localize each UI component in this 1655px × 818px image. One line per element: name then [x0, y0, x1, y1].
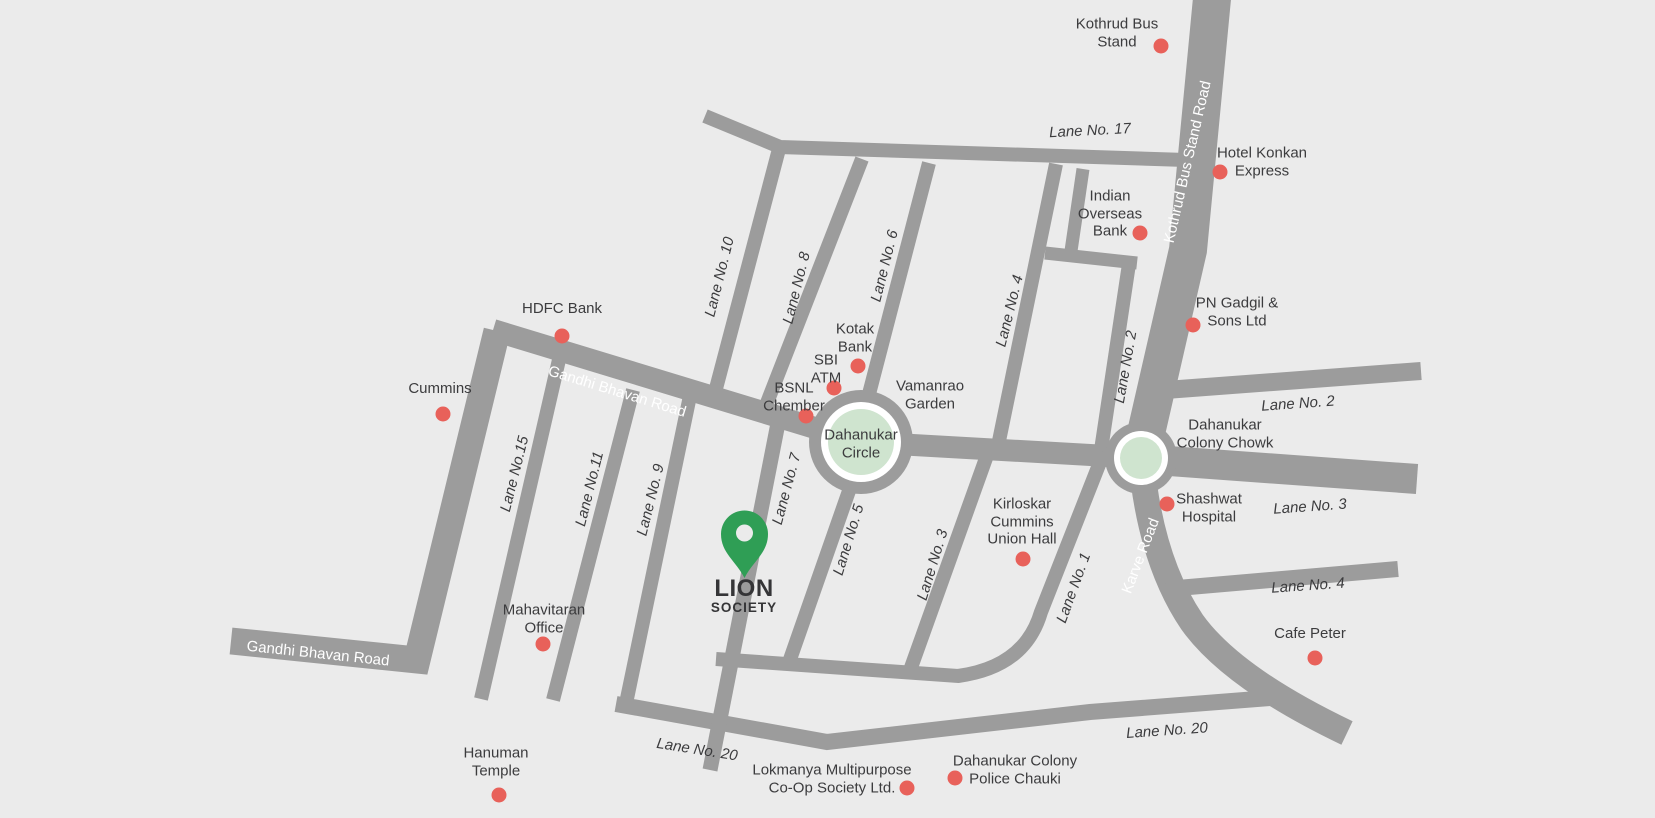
road-lane-9	[624, 391, 691, 713]
label-shashwat-hospital: Shashwat Hospital	[1176, 490, 1242, 525]
label-cummins: Cummins	[408, 380, 471, 398]
marker-kirloskar-cummins-union-hall	[1016, 552, 1031, 567]
road-lane-3-center	[908, 447, 990, 676]
lion-society-type: SOCIETY	[711, 600, 777, 616]
map-canvas	[0, 0, 1655, 818]
road-lane-11	[553, 390, 633, 700]
marker-hdfc-bank	[555, 329, 570, 344]
dahanukar-chowk-green	[1120, 437, 1162, 479]
label-cafe-peter: Cafe Peter	[1274, 625, 1346, 643]
road-lane-1	[716, 452, 1104, 676]
marker-mahavitaran-office	[536, 637, 551, 652]
label-hanuman-temple: Hanuman Temple	[463, 744, 528, 779]
marker-kotak-bank	[851, 359, 866, 374]
label-lokmanya-society: Lokmanya Multipurpose Co-Op Society Ltd.	[752, 761, 911, 796]
label-kothrud-bus-stand: Kothrud Bus Stand	[1076, 15, 1159, 50]
label-vamanrao-garden: Vamanrao Garden	[896, 377, 964, 412]
road-iob-block-south	[1045, 253, 1137, 263]
lion-society-pin-icon	[721, 511, 768, 579]
label-dahanukar-circle: Dahanukar Circle	[824, 426, 897, 461]
marker-cafe-peter	[1308, 651, 1323, 666]
label-pn-gadgil-sons: PN Gadgil & Sons Ltd	[1196, 294, 1279, 329]
marker-shashwat-hospital	[1160, 497, 1175, 512]
label-dahanukar-police-chauki: Dahanukar Colony Police Chauki	[953, 752, 1077, 787]
label-kotak-bank: Kotak Bank	[836, 320, 874, 355]
lion-society-name: LION	[714, 575, 773, 603]
label-indian-overseas-bank: Indian Overseas Bank	[1078, 187, 1142, 240]
label-bsnl-chember: BSNL Chember	[763, 379, 825, 414]
label-kirloskar-cummins-union-hall: Kirloskar Cummins Union Hall	[987, 495, 1056, 548]
label-hdfc-bank: HDFC Bank	[522, 300, 602, 318]
location-map: Dahanukar Circle Dahanukar Colony Chowk …	[0, 0, 1655, 818]
marker-hanuman-temple	[492, 788, 507, 803]
label-dahanukar-colony-chowk: Dahanukar Colony Chowk	[1177, 416, 1274, 451]
marker-cummins	[436, 407, 451, 422]
road-lane-2-east	[1152, 371, 1421, 391]
label-mahavitaran-office: Mahavitaran Office	[503, 601, 586, 636]
label-hotel-konkan-express: Hotel Konkan Express	[1217, 144, 1307, 179]
road-lane-3-east	[1141, 459, 1417, 479]
